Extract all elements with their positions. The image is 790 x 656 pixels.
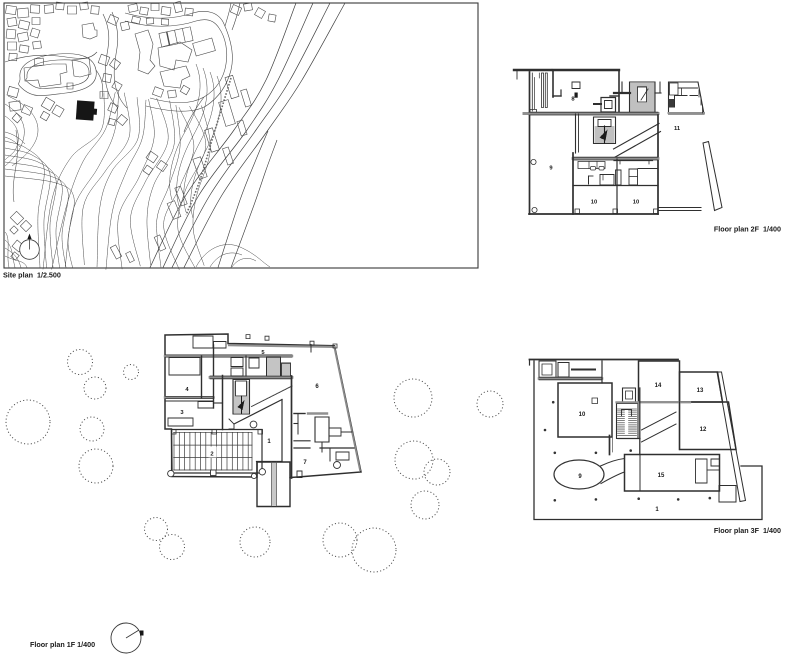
svg-text:12: 12 bbox=[700, 427, 707, 433]
svg-text:Site plan 1/2.500: Site plan 1/2.500 bbox=[3, 271, 61, 280]
svg-text:10: 10 bbox=[591, 200, 597, 206]
svg-text:Floor plan 1F 1/400: Floor plan 1F 1/400 bbox=[30, 640, 95, 649]
svg-text:10: 10 bbox=[579, 412, 586, 418]
svg-text:Floor plan 3F 1/400: Floor plan 3F 1/400 bbox=[714, 526, 781, 535]
svg-text:10: 10 bbox=[633, 200, 639, 206]
svg-text:13: 13 bbox=[697, 388, 704, 394]
svg-text:15: 15 bbox=[658, 473, 665, 479]
svg-text:2: 2 bbox=[210, 452, 213, 458]
svg-text:14: 14 bbox=[655, 383, 662, 389]
svg-text:Floor plan 2F 1/400: Floor plan 2F 1/400 bbox=[714, 225, 781, 234]
svg-text:11: 11 bbox=[674, 126, 681, 132]
